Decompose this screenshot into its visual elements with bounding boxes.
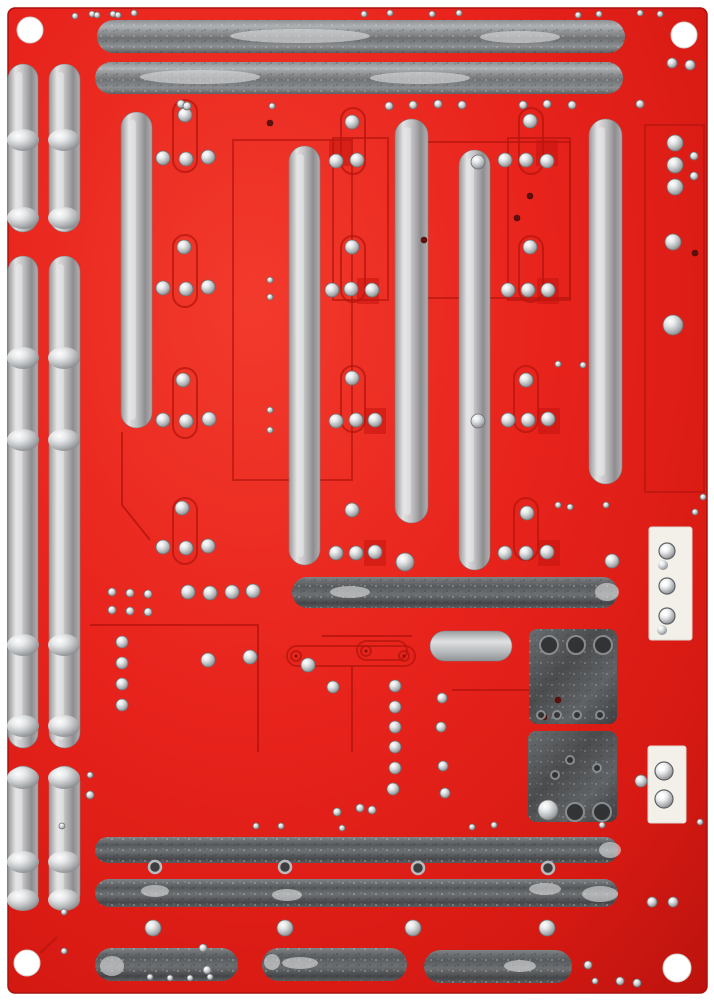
solder-dot [225,585,239,599]
solder-dot [333,808,341,816]
solder-dot [471,414,485,428]
solder-dot [697,819,703,825]
solder-dot [596,11,602,17]
solder-bulge [7,851,39,873]
solder-dot [61,909,67,915]
solder-dot [368,413,382,427]
solder-dot [491,822,497,828]
solder-dot [267,294,273,300]
solder-dot [116,636,128,648]
pcb-photo [0,0,714,1000]
tinned-trace-vertical [589,119,622,484]
solder-bulge [48,207,80,229]
solder-dot [278,823,284,829]
solder-dot [94,12,100,18]
solder-dot [108,606,116,614]
solder-dot [501,283,515,297]
solder-dot [667,58,677,68]
solder-dot [349,413,363,427]
solder-bulge [48,634,80,656]
pad-ring [566,803,584,821]
solder-dot [616,977,624,985]
tinned-trace-vertical [289,146,320,565]
drill-hole [527,193,533,199]
solder-dot [267,277,273,283]
solder-dot [345,503,359,517]
solder-dot [345,371,359,385]
via-ring [149,861,161,873]
solder-glint [599,842,621,858]
solder-glint [100,956,124,976]
pad-ring [593,803,611,821]
solder-dot [436,722,446,732]
solder-dot [409,101,417,109]
trace-sheen [58,264,64,740]
solder-dot [540,545,554,559]
solder-glint [504,960,536,972]
solder-dot [201,280,215,294]
solder-dot [567,504,573,510]
solder-dot [575,12,581,18]
solder-dot [199,944,207,952]
solder-dot [350,153,364,167]
solder-glint [264,954,280,970]
product-photo [0,0,714,1000]
solder-dot [203,966,211,974]
tinned-pad-capsule [430,631,512,661]
pin-highlight [662,546,668,552]
solder-dot [523,114,537,128]
solder-glint [480,31,560,43]
solder-dot [685,60,695,70]
trace-sheen [58,774,64,902]
solder-dot [349,546,363,560]
solder-glint [330,586,370,598]
via-ring [412,862,424,874]
solder-dot [177,240,191,254]
pad-ring [573,711,581,719]
solder-dot [389,680,401,692]
solder-dot [592,978,598,984]
solder-dot [175,501,189,515]
trace-sheen [16,774,22,902]
solder-dot [179,414,193,428]
solder-dot [665,234,681,250]
solder-dot [368,806,376,814]
solder-dot [469,824,475,830]
solder-dot [144,608,152,616]
solder-dot [429,11,435,17]
solder-dot [521,413,535,427]
solder-glint [370,72,470,84]
solder-dot [178,108,192,122]
solder-dot [267,427,273,433]
solder-bulge [7,715,39,737]
solder-glint [282,957,318,969]
solder-dot [501,413,515,427]
solder-dot [344,282,358,296]
solder-dot [584,961,592,969]
pin-highlight [662,611,668,617]
solder-dot [438,761,448,771]
pad-ring [567,636,585,654]
pin-solder-blob [658,560,668,570]
connector-pin [659,578,675,594]
drill-hole [555,697,561,703]
pad-ring [593,764,601,772]
pin-highlight [659,793,665,799]
solder-dot [126,607,134,615]
solder-dot [126,589,134,597]
solder-dot [605,554,619,568]
solder-dot [301,658,315,672]
via-ring [279,861,291,873]
trace-texture [95,837,618,863]
solder-dot [61,948,67,954]
solder-bulge [7,767,39,789]
trace-sheen [16,264,22,740]
solder-dot [179,152,193,166]
solder-dot [329,414,343,428]
solder-dot [87,772,93,778]
solder-dot [345,240,359,254]
solder-dot [498,153,512,167]
tinned-trace-vertical [395,119,428,523]
solder-dot [635,775,647,787]
solder-dot [458,101,466,109]
solder-bulge [48,851,80,873]
solder-dot [523,240,537,254]
tinned-trace-vertical [121,112,152,428]
solder-bulge [7,347,39,369]
solder-dot [356,804,364,812]
solder-dot [207,974,213,980]
connector-pin [655,790,673,808]
solder-bulge [7,889,39,911]
solder-dot [246,584,260,598]
via-ring [542,862,554,874]
connector-pin [655,762,673,780]
solder-dot [690,172,698,180]
solder-dot [580,362,586,368]
solder-dot [368,545,382,559]
solder-glint [141,885,169,897]
solder-dot [603,502,609,508]
solder-bulge [7,129,39,151]
solder-dot [636,100,644,108]
mounting-hole [663,954,691,982]
solder-dot [519,153,533,167]
solder-dot [471,155,485,169]
solder-dot [179,541,193,555]
solder-dot [183,102,191,110]
solder-dot [116,657,128,669]
solder-dot [539,920,555,936]
solder-dot [167,975,173,981]
solder-dot [385,102,393,110]
solder-dot [456,10,462,16]
solder-dot [667,157,683,173]
drill-hole [267,120,273,126]
solder-dot [187,975,193,981]
solder-glint [230,29,370,43]
trace-sheen [298,154,304,557]
solder-dot [396,553,414,571]
mounting-hole [17,17,43,43]
trace-texture [424,950,572,983]
solder-dot [541,283,555,297]
solder-bulge [48,347,80,369]
solder-dot [668,897,678,907]
solder-dot [365,283,379,297]
solder-dot [243,650,257,664]
pin-highlight [659,765,665,771]
pin-highlight [662,581,668,587]
solder-dot [131,10,137,16]
solder-dot [201,150,215,164]
empty-pad-hole [295,655,298,658]
solder-dot [667,135,683,151]
tinned-trace-vertical [8,256,38,748]
solder-bulge [48,129,80,151]
connector-pin [659,608,675,624]
solder-bulge [48,715,80,737]
solder-dot [116,699,128,711]
solder-glint [529,883,561,895]
solder-bulge [7,207,39,229]
solder-dot [599,822,605,828]
solder-dot [519,546,533,560]
solder-dot [519,101,527,109]
solder-dot [543,100,551,108]
solder-dot [339,825,345,831]
solder-dot [181,585,195,599]
drill-hole [514,215,520,221]
solder-dot [387,783,399,795]
solder-dot [253,823,259,829]
pad-ring [596,711,604,719]
solder-dot [389,762,401,774]
drill-hole [692,250,698,256]
solder-dot [541,412,555,426]
pad-ring [594,636,612,654]
solder-glint [595,583,619,601]
wire-connector [648,746,686,823]
solder-dot [667,179,683,195]
solder-dot [540,154,554,168]
trace-sheen [468,158,474,562]
solder-dot [202,412,216,426]
solder-bulge [48,767,80,789]
pad-ring [553,711,561,719]
solder-dot [325,283,339,297]
solder-dot [437,693,447,703]
tinned-trace-vertical [49,256,80,748]
solder-dot [538,800,558,820]
solder-dot [692,509,698,515]
solder-dot [519,373,533,387]
solder-dot [389,741,401,753]
solder-dot [156,151,170,165]
solder-bulge [48,429,80,451]
solder-dot [657,11,663,17]
solder-dot [329,154,343,168]
drill-hole [421,237,427,243]
solder-glint [140,70,260,84]
empty-pad-hole [365,650,368,653]
solder-glint [272,889,302,901]
solder-dot [555,361,561,367]
solder-dot [555,502,561,508]
solder-dot [108,588,116,596]
solder-dot [201,653,215,667]
solder-dot [637,10,643,16]
solder-dot [633,979,641,987]
trace-sheen [598,127,605,476]
solder-dot [201,539,215,553]
pad-ring [537,711,545,719]
solder-dot [389,721,401,733]
pad-ring [540,636,558,654]
solder-dot [405,920,421,936]
connector-pin [659,543,675,559]
solder-dot [568,101,576,109]
solder-dot [144,590,152,598]
solder-dot [345,115,359,129]
solder-dot [156,413,170,427]
solder-dot [72,13,78,19]
solder-dot [663,315,683,335]
solder-dot [59,823,65,829]
solder-dot [179,282,193,296]
solder-dot [700,494,706,500]
solder-dot [521,283,535,297]
solder-dot [389,701,401,713]
mounting-hole [14,950,40,976]
solder-bulge [48,889,80,911]
solder-dot [690,152,698,160]
empty-pad-hole [403,655,406,658]
solder-dot [86,791,94,799]
solder-dot [147,974,153,980]
solder-dot [156,281,170,295]
trace-sheen [130,120,136,420]
mounting-hole [671,22,697,48]
solder-dot [267,407,273,413]
solder-dot [277,920,293,936]
solder-dot [269,103,275,109]
solder-dot [329,546,343,560]
solder-bulge [7,429,39,451]
pin-solder-blob [657,625,667,635]
pad-ring [566,756,574,764]
solder-dot [156,540,170,554]
solder-dot [176,373,190,387]
solder-dot [520,506,534,520]
pad-ring [551,771,559,779]
trace-sheen [404,127,411,515]
solder-glint [582,886,618,902]
solder-dot [387,10,393,16]
solder-dot [498,546,512,560]
solder-dot [327,681,339,693]
solder-dot [203,586,217,600]
solder-dot [116,678,128,690]
solder-dot [647,897,657,907]
solder-bulge [7,634,39,656]
solder-dot [115,12,121,18]
solder-dot [434,100,442,108]
tinned-trace-vertical [459,150,490,570]
solder-dot [440,788,450,798]
solder-dot [361,11,367,17]
solder-dot [145,920,161,936]
